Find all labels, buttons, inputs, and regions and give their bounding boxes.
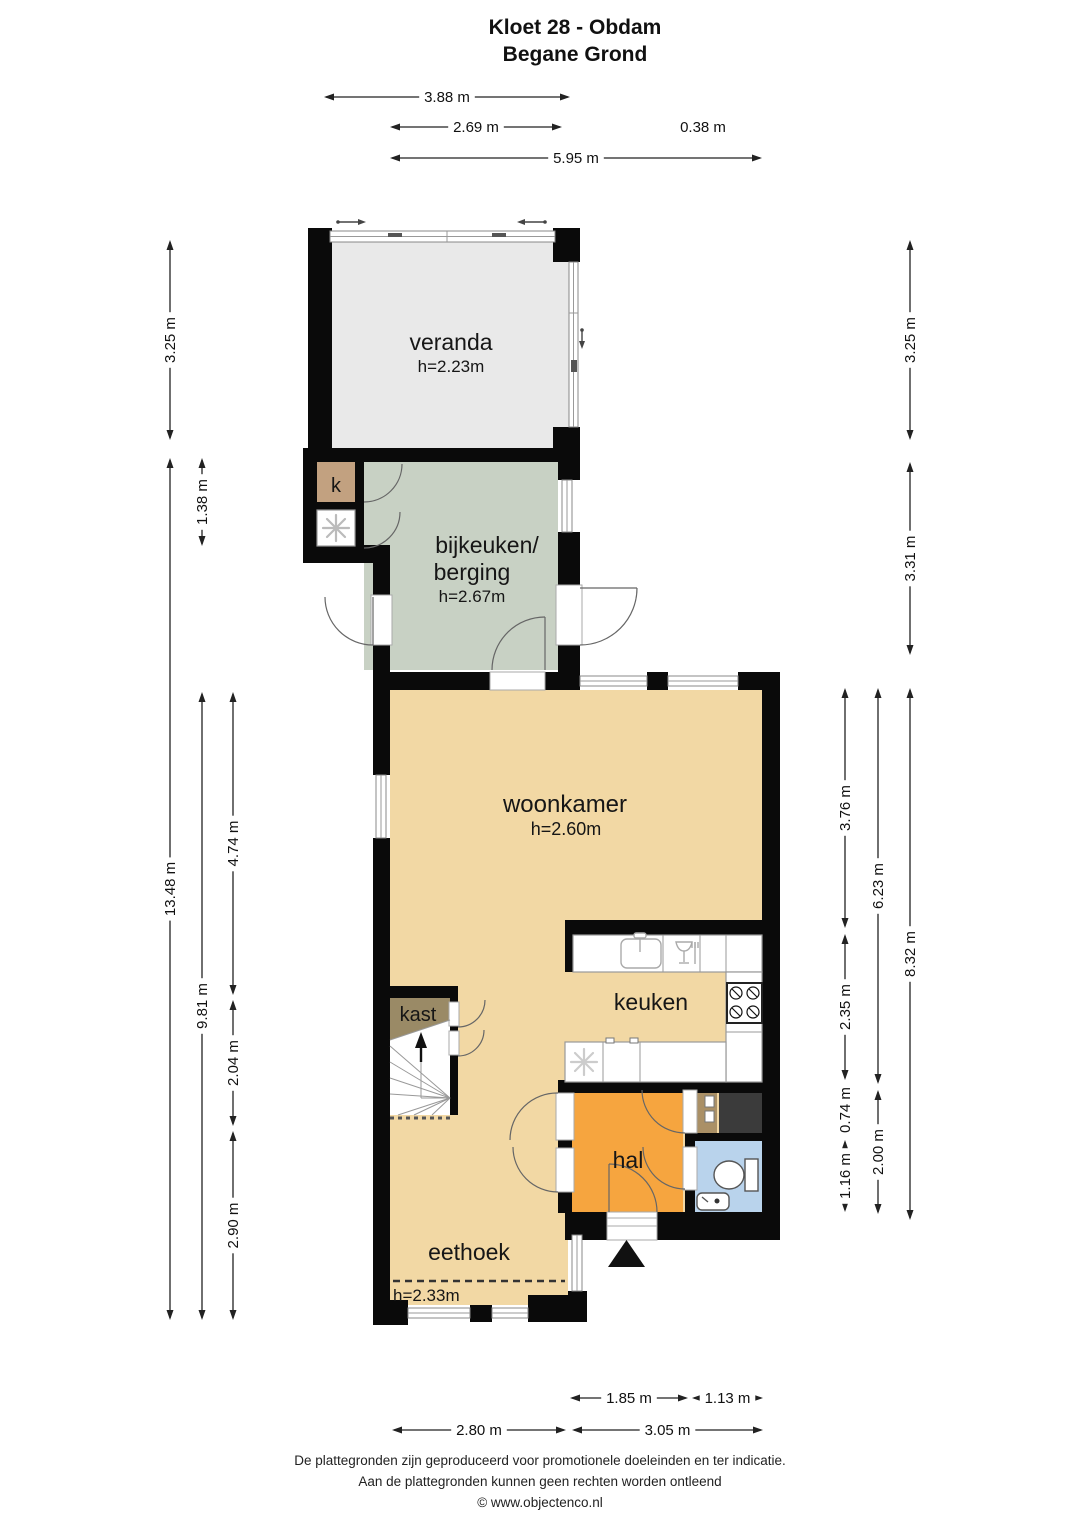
washing-machine-icon [323, 515, 349, 541]
dark-unit [719, 1092, 762, 1133]
svg-text:2.00 m: 2.00 m [870, 1129, 887, 1175]
floor-plan-page: Kloet 28 - Obdam Begane Grond [0, 0, 1080, 1527]
dimension-1.13-m: 1.13 m [692, 1389, 763, 1407]
svg-text:0.74 m: 0.74 m [837, 1087, 854, 1133]
toilet-icon [714, 1159, 758, 1191]
svg-text:1.85 m: 1.85 m [606, 1390, 652, 1407]
label-k-closet: k [331, 475, 342, 497]
dimension-9.81-m: 9.81 m [193, 692, 211, 1320]
svg-text:3.25 m: 3.25 m [902, 317, 919, 363]
svg-text:1.38 m: 1.38 m [194, 479, 211, 525]
dimension-3.25-m: 3.25 m [161, 240, 179, 440]
dimension-2.80-m: 2.80 m [392, 1421, 566, 1439]
svg-text:1.16 m: 1.16 m [837, 1153, 854, 1199]
footer-line-3: © www.objectenco.nl [0, 1492, 1080, 1513]
svg-text:9.81 m: 9.81 m [194, 983, 211, 1029]
label-bijkeuken-2: berging [434, 559, 511, 585]
svg-text:3.31 m: 3.31 m [902, 536, 919, 582]
kitchen-washer-icon [571, 1049, 597, 1075]
svg-text:3.88 m: 3.88 m [424, 89, 470, 106]
dimension-1.85-m: 1.85 m [570, 1389, 688, 1407]
label-woonkamer: woonkamer [502, 791, 627, 818]
floor-plan-svg: veranda h=2.23m k bijkeuken/ berging h=2… [0, 0, 1080, 1527]
label-keuken: keuken [614, 989, 688, 1015]
svg-text:13.48 m: 13.48 m [162, 862, 179, 916]
laundry-closet [317, 510, 355, 546]
svg-text:1.13 m: 1.13 m [705, 1390, 751, 1407]
dimension-0.74-m: 0.74 m [836, 1082, 854, 1138]
label-veranda-height: h=2.23m [418, 357, 485, 376]
svg-text:2.80 m: 2.80 m [456, 1422, 502, 1439]
entrance-arrow-icon [608, 1240, 645, 1267]
dimension-3.05-m: 3.05 m [572, 1421, 763, 1439]
svg-text:2.35 m: 2.35 m [837, 984, 854, 1030]
label-woonkamer-height: h=2.60m [531, 819, 602, 839]
label-eethoek: eethoek [428, 1239, 510, 1265]
footer-line-1: De plattegronden zijn geproduceerd voor … [0, 1450, 1080, 1471]
label-veranda: veranda [409, 329, 492, 355]
svg-text:3.05 m: 3.05 m [645, 1422, 691, 1439]
svg-text:6.23 m: 6.23 m [870, 863, 887, 909]
dimension-1.16-m: 1.16 m [836, 1140, 854, 1212]
dimension-5.95-m: 5.95 m [390, 149, 762, 167]
dimension-3.76-m: 3.76 m [836, 688, 854, 928]
dimension-13.48-m: 13.48 m [161, 458, 179, 1320]
stove-icon [727, 983, 762, 1023]
dimension-3.31-m: 3.31 m [901, 462, 919, 655]
hand-basin-icon [697, 1193, 729, 1210]
bijkeuken-right-exterior-door-arc [580, 588, 637, 645]
footer-disclaimer: De plattegronden zijn geproduceerd voor … [0, 1450, 1080, 1513]
svg-text:4.74 m: 4.74 m [225, 821, 242, 867]
svg-text:0.38 m: 0.38 m [680, 119, 726, 136]
dimension-4.74-m: 4.74 m [224, 692, 242, 995]
dimension-0.38-m: 0.38 m [680, 119, 726, 136]
dimension-2.69-m: 2.69 m [390, 118, 562, 136]
label-bijkeuken-height: h=2.67m [439, 587, 506, 606]
dimension-6.23-m: 6.23 m [869, 688, 887, 1084]
dimension-2.90-m: 2.90 m [224, 1131, 242, 1320]
dimension-2.04-m: 2.04 m [224, 1000, 242, 1126]
svg-text:2.69 m: 2.69 m [453, 119, 499, 136]
svg-text:3.76 m: 3.76 m [837, 785, 854, 831]
label-bijkeuken-1: bijkeuken/ [435, 532, 539, 558]
svg-text:2.90 m: 2.90 m [225, 1203, 242, 1249]
footer-line-2: Aan de plattegronden kunnen geen rechten… [0, 1471, 1080, 1492]
svg-text:3.25 m: 3.25 m [162, 317, 179, 363]
svg-text:2.04 m: 2.04 m [225, 1040, 242, 1086]
label-hal: hal [613, 1147, 644, 1173]
label-eethoek-height: h=2.33m [393, 1286, 460, 1305]
dimension-2.35-m: 2.35 m [836, 934, 854, 1080]
dimension-3.88-m: 3.88 m [324, 88, 570, 106]
dimension-8.32-m: 8.32 m [901, 688, 919, 1220]
svg-text:8.32 m: 8.32 m [902, 931, 919, 977]
label-kast: kast [400, 1004, 437, 1026]
dimension-1.38-m: 1.38 m [193, 458, 211, 546]
dimension-3.25-m: 3.25 m [901, 240, 919, 440]
dimension-2.00-m: 2.00 m [869, 1090, 887, 1214]
svg-text:5.95 m: 5.95 m [553, 150, 599, 167]
